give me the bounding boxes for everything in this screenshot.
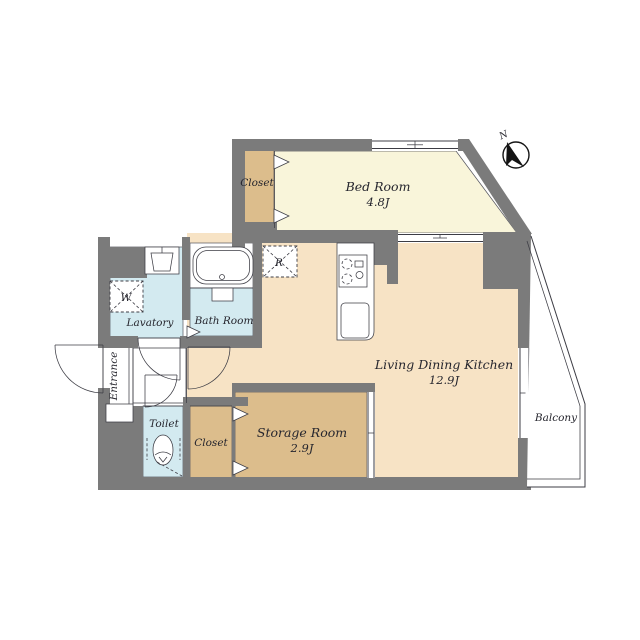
- entrance-step: [106, 404, 133, 422]
- bedroom-sliding-door: [398, 233, 483, 243]
- bed-room-label: Bed Room: [345, 179, 411, 194]
- refrigerator-label: R: [274, 257, 283, 269]
- ldk-label: Living Dining Kitchen: [374, 357, 513, 372]
- toilet-label: Toilet: [149, 418, 179, 430]
- lavatory-label: Lavatory: [126, 317, 175, 329]
- bed-room-area: 4.8J: [366, 195, 391, 209]
- balcony-label: Balcony: [534, 412, 578, 424]
- hallway-floor: [133, 348, 186, 403]
- kitchen-counter: [337, 243, 374, 340]
- bedroom-window: [372, 139, 458, 151]
- storage-sliding-door: [367, 392, 375, 478]
- compass-north-label: N: [497, 129, 511, 143]
- washer-label: W: [121, 292, 133, 304]
- kitchen-sink-icon: [341, 303, 369, 338]
- bath-room-label: Bath Room: [194, 315, 254, 327]
- storage-room-area: 2.9J: [290, 441, 315, 455]
- washing-machine-marker: W: [110, 281, 143, 312]
- storage-room-label: Storage Room: [257, 425, 347, 440]
- toilet-door-arc: [145, 375, 177, 407]
- closet-upper-label: Closet: [240, 177, 274, 189]
- entrance-door-arc: [55, 345, 103, 393]
- compass-icon: N: [497, 129, 529, 168]
- entrance-label: Entrance: [108, 352, 120, 402]
- lavatory-door-arc: [138, 338, 180, 380]
- floor-plan-page: R W: [0, 0, 640, 640]
- floor-plan-drawing: R W: [0, 0, 640, 640]
- closet-lower-label: Closet: [194, 437, 228, 449]
- balcony-outline: [527, 236, 585, 487]
- refrigerator-marker: R: [263, 246, 297, 277]
- ldk-area: 12.9J: [429, 373, 461, 387]
- stove-icon: [339, 255, 367, 287]
- lavatory-sink-icon: [145, 247, 179, 274]
